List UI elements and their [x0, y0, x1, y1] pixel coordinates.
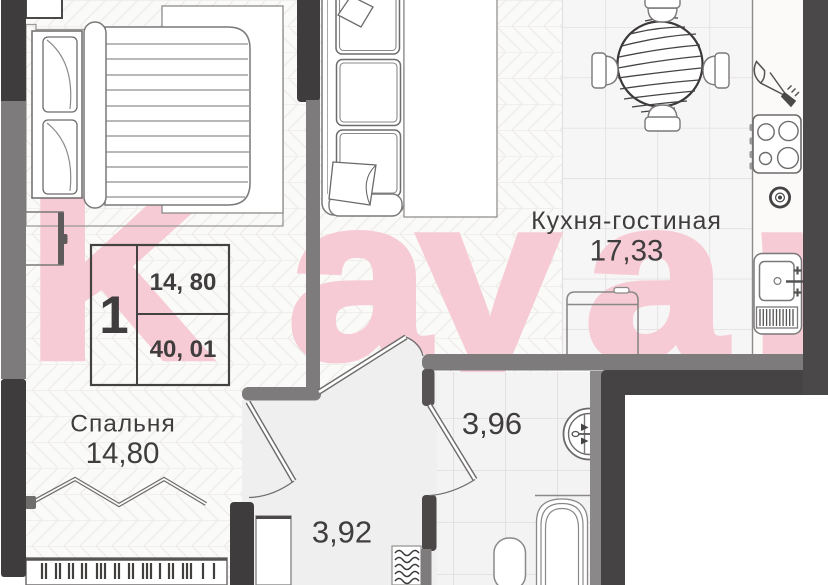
svg-text:14, 80: 14, 80 [150, 269, 217, 296]
svg-text:3,96: 3,96 [462, 406, 522, 441]
svg-text:17,33: 17,33 [590, 235, 664, 268]
svg-text:14,80: 14,80 [86, 437, 160, 470]
svg-text:Спальня: Спальня [70, 411, 175, 438]
svg-text:1: 1 [99, 286, 128, 345]
svg-text:Кухня-гостиная: Кухня-гостиная [531, 207, 722, 235]
svg-text:3,92: 3,92 [312, 515, 372, 550]
svg-text:40, 01: 40, 01 [150, 336, 217, 363]
